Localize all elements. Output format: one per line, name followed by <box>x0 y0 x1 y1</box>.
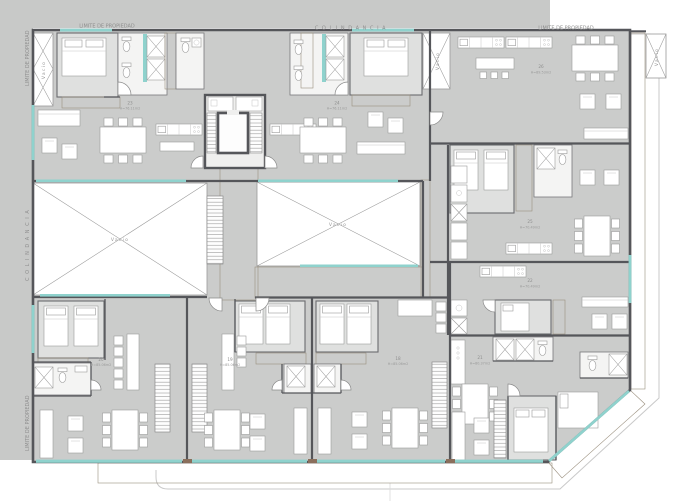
stool <box>480 72 487 79</box>
shower <box>147 59 165 80</box>
floor-plan-sheet: LIMITE DE PROPIEDAD COLINDANCIA LIMITE D… <box>0 0 675 502</box>
unit-number: 20 <box>98 357 104 362</box>
lounge-chair <box>68 416 83 431</box>
bed <box>74 306 98 346</box>
unit-area: H=89.53m2 <box>531 71 552 75</box>
sofa <box>318 408 331 454</box>
limite-top-left-label: LIMITE DE PROPIEDAD <box>79 24 135 30</box>
unit-area: H=85.06m2 <box>91 363 112 367</box>
unit-area: H=70.49m2 <box>520 285 541 289</box>
lounge-chair <box>580 94 595 109</box>
skylight-glazing <box>143 34 147 82</box>
dining-set <box>575 216 620 256</box>
unit-number: 25 <box>527 219 533 224</box>
lounge-chair <box>42 138 57 153</box>
ladder-shaft <box>207 113 216 153</box>
bed <box>347 304 371 344</box>
lounge-chair <box>352 434 367 449</box>
washer <box>192 38 201 47</box>
unit-number: 23 <box>127 101 133 106</box>
dining-set <box>205 410 250 450</box>
elevator-door <box>227 110 239 115</box>
lounge-chair <box>474 440 489 455</box>
kitchen-counter <box>156 124 202 135</box>
void-label: Vacio <box>654 48 660 66</box>
stool <box>502 72 509 79</box>
kitchen-counter <box>506 243 552 254</box>
shower <box>317 366 335 387</box>
dining-set <box>300 118 346 163</box>
shower <box>516 339 534 360</box>
void-label: Vacio <box>41 61 47 79</box>
sofa <box>38 110 80 126</box>
bed <box>320 304 344 344</box>
washer <box>451 300 467 316</box>
lounge-chair <box>68 438 83 453</box>
lounge-chair <box>388 118 403 133</box>
lounge-chair <box>62 144 77 159</box>
dining-set <box>103 410 148 450</box>
bed <box>44 306 68 346</box>
floor-plan-drawing: LIMITE DE PROPIEDAD COLINDANCIA LIMITE D… <box>0 0 675 502</box>
lounge-chair <box>580 170 595 185</box>
unit-number: 22 <box>527 278 533 283</box>
shower <box>609 354 627 375</box>
void-label: Vacio <box>435 52 441 70</box>
bed <box>484 150 508 190</box>
lounge-chair <box>352 412 367 427</box>
lounge-chair <box>604 170 619 185</box>
limite-left-upper-label: LIMITE DE PROPIEDAD <box>25 30 31 86</box>
shower <box>35 367 53 388</box>
vanity <box>75 366 87 372</box>
unit-number: 26 <box>538 64 544 69</box>
sofa <box>582 297 628 307</box>
kitchen-counter <box>480 266 526 277</box>
ladder-shaft <box>250 113 262 153</box>
sofa <box>584 128 628 139</box>
louver-screen-right <box>631 33 645 389</box>
unit-area: H=70.49m2 <box>520 226 541 230</box>
lounge-chair <box>474 418 489 433</box>
skylight-glazing <box>322 34 326 82</box>
shaft-room <box>208 97 233 111</box>
lounge-chair <box>612 314 627 329</box>
shower <box>496 339 514 360</box>
void-label: Vacio <box>111 237 129 243</box>
unit-area: H=76.11m2 <box>120 107 141 111</box>
elevator-core <box>205 95 265 168</box>
lounge-chair <box>250 414 265 429</box>
unit-number: 18 <box>395 356 401 361</box>
kitchen-counter <box>458 37 504 48</box>
unit-area: H=76.11m2 <box>327 107 348 111</box>
unit-area: H=85.06m2 <box>220 363 241 367</box>
service-shafts <box>451 166 467 259</box>
unit-area: H=80.37m2 <box>470 362 491 366</box>
dining-set <box>383 408 428 448</box>
unit-number: 21 <box>477 355 483 360</box>
sofa <box>452 412 465 460</box>
shower <box>326 59 344 80</box>
bed <box>364 38 408 76</box>
shower <box>537 148 555 169</box>
void-label: Vacio <box>329 222 347 228</box>
sofa <box>357 142 405 154</box>
dining-set <box>572 36 618 81</box>
deck-bottom <box>98 463 552 483</box>
lounge-chair <box>606 94 621 109</box>
stair-core <box>207 196 223 264</box>
sofa <box>294 408 307 454</box>
unit-number: 19 <box>227 357 233 362</box>
unit-area: H=85.06m2 <box>388 362 409 366</box>
bed <box>266 304 290 344</box>
limite-top-right-label: LIMITE DE PROPIEDAD <box>538 26 594 32</box>
shower <box>147 36 165 57</box>
colindancia-left-label: COLINDANCIA <box>25 207 31 281</box>
shower <box>326 36 344 57</box>
shower <box>287 366 305 387</box>
dining-set <box>100 118 146 163</box>
lounge-chair <box>592 314 607 329</box>
stair <box>494 400 506 458</box>
kitchen-island <box>160 142 194 151</box>
sofa <box>40 410 53 458</box>
stair <box>155 364 170 432</box>
colindancia-top-label: COLINDANCIA <box>315 26 389 32</box>
kitchen-counter <box>506 37 552 48</box>
elevator-cab <box>218 113 248 153</box>
bed <box>62 38 106 76</box>
unit-number: 24 <box>334 101 340 106</box>
stair <box>432 362 447 428</box>
kitchen-island <box>476 58 514 69</box>
stool <box>491 72 498 79</box>
limite-left-lower-label: LIMITE DE PROPIEDAD <box>25 395 31 451</box>
lounge-chair <box>368 112 383 127</box>
lounge-chair <box>250 436 265 451</box>
